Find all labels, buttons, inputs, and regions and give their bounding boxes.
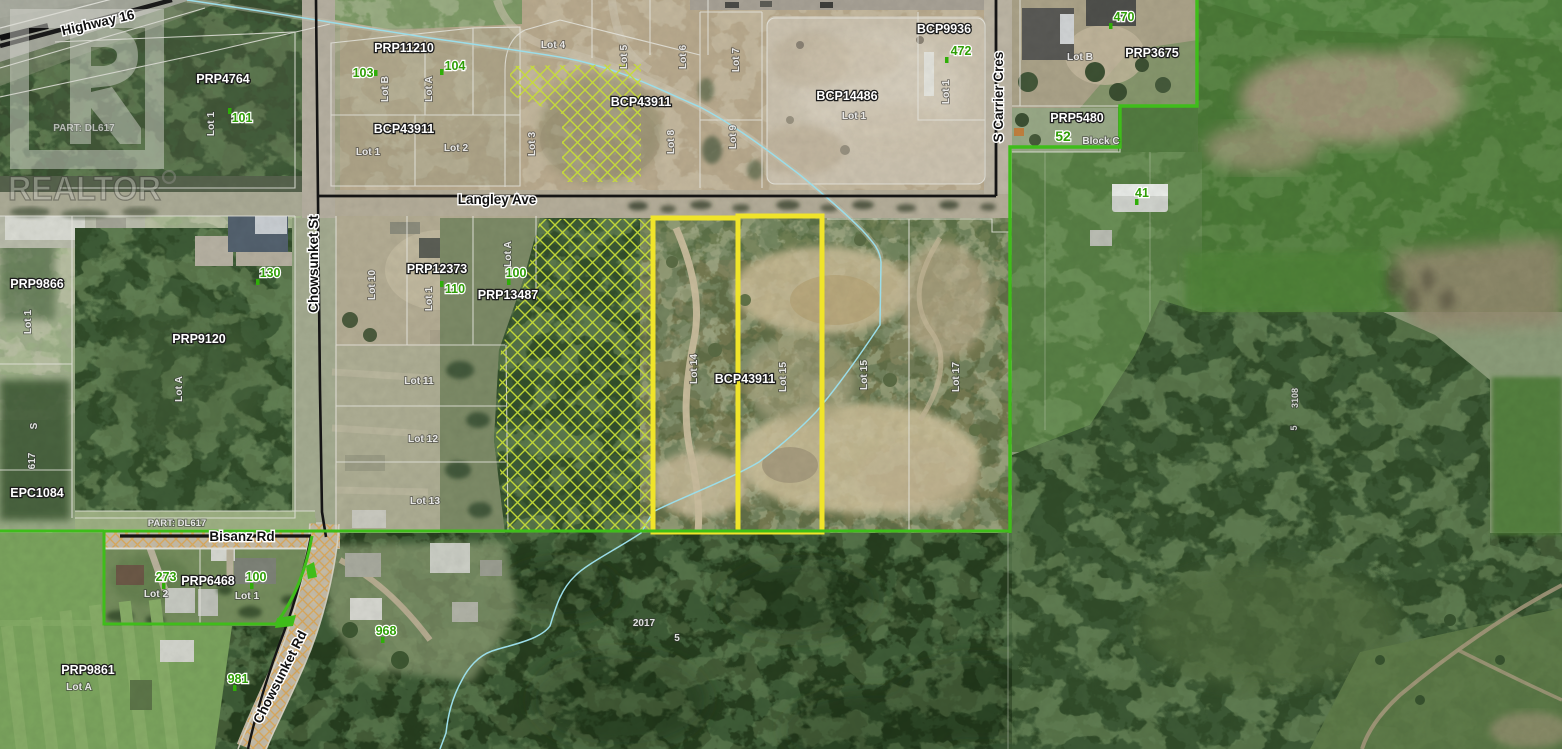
svg-text:104: 104 — [445, 59, 466, 73]
svg-text:Lot 13: Lot 13 — [410, 496, 440, 507]
svg-text:130: 130 — [260, 266, 281, 280]
svg-text:Lot 5: Lot 5 — [619, 45, 630, 70]
svg-text:PRP13487: PRP13487 — [478, 288, 539, 302]
svg-text:Lot 1: Lot 1 — [23, 310, 34, 335]
svg-text:Lot 17: Lot 17 — [951, 362, 962, 392]
svg-text:968: 968 — [376, 624, 397, 638]
svg-text:5: 5 — [674, 633, 680, 644]
svg-text:Lot 11: Lot 11 — [404, 376, 434, 387]
svg-text:103: 103 — [353, 66, 374, 80]
svg-text:Lot 1: Lot 1 — [842, 111, 867, 122]
svg-text:Lot 10: Lot 10 — [367, 270, 378, 300]
svg-text:BCP43911: BCP43911 — [374, 122, 435, 136]
svg-text:PRP6468: PRP6468 — [181, 574, 235, 588]
svg-text:Lot 4: Lot 4 — [541, 40, 566, 51]
svg-text:Lot 1: Lot 1 — [235, 591, 260, 602]
svg-text:Lot 9: Lot 9 — [728, 125, 739, 150]
svg-text:BCP43911: BCP43911 — [611, 95, 672, 109]
svg-text:273: 273 — [156, 570, 177, 584]
svg-text:Lot A: Lot A — [66, 682, 92, 693]
svg-text:Lot A: Lot A — [424, 76, 435, 102]
svg-text:Langley Ave: Langley Ave — [458, 192, 537, 207]
svg-text:PRP9861: PRP9861 — [61, 663, 115, 677]
svg-text:PRP3675: PRP3675 — [1125, 46, 1179, 60]
svg-text:Lot 2: Lot 2 — [144, 589, 169, 600]
svg-text:PRP9120: PRP9120 — [172, 332, 226, 346]
svg-text:Lot 6: Lot 6 — [678, 45, 689, 70]
svg-text:100: 100 — [246, 570, 267, 584]
svg-text:472: 472 — [951, 44, 972, 58]
svg-text:5: 5 — [1289, 425, 1299, 430]
svg-text:Lot 1: Lot 1 — [206, 112, 217, 137]
svg-text:101: 101 — [232, 111, 253, 125]
svg-text:981: 981 — [228, 672, 249, 686]
svg-text:Lot 3: Lot 3 — [527, 132, 538, 157]
svg-text:Lot 1: Lot 1 — [941, 80, 952, 105]
svg-text:REALTOR: REALTOR — [8, 170, 161, 208]
svg-text:3108: 3108 — [1290, 388, 1300, 408]
svg-text:Lot A: Lot A — [174, 376, 185, 402]
svg-text:Lot 1: Lot 1 — [424, 287, 435, 312]
svg-text:Chowsunket St: Chowsunket St — [306, 215, 321, 313]
svg-text:617: 617 — [27, 452, 38, 469]
svg-text:110: 110 — [445, 282, 465, 296]
svg-text:470: 470 — [1114, 10, 1135, 24]
svg-text:Lot 8: Lot 8 — [666, 130, 677, 155]
svg-text:PRP5480: PRP5480 — [1050, 111, 1104, 125]
svg-text:PART: DL617: PART: DL617 — [148, 518, 206, 529]
svg-text:PRP12373: PRP12373 — [407, 262, 468, 276]
svg-text:BCP9936: BCP9936 — [917, 22, 971, 36]
svg-text:PRP11210: PRP11210 — [374, 41, 434, 55]
svg-text:Lot A: Lot A — [503, 241, 514, 267]
svg-text:BCP14486: BCP14486 — [816, 89, 877, 103]
svg-text:Lot B: Lot B — [380, 76, 391, 102]
svg-text:Lot 12: Lot 12 — [408, 434, 438, 445]
svg-text:52: 52 — [1055, 128, 1071, 144]
svg-text:41: 41 — [1135, 186, 1149, 200]
svg-text:100: 100 — [506, 266, 527, 280]
svg-text:S Carrier Cres: S Carrier Cres — [991, 52, 1006, 143]
svg-text:BCP43911: BCP43911 — [715, 372, 776, 386]
svg-text:2017: 2017 — [633, 618, 656, 629]
svg-text:PRP4764: PRP4764 — [196, 72, 250, 86]
svg-text:Lot 15: Lot 15 — [778, 362, 789, 392]
svg-text:PART: DL617: PART: DL617 — [53, 123, 115, 134]
svg-text:Lot 14: Lot 14 — [689, 354, 700, 384]
svg-text:S: S — [29, 422, 40, 429]
svg-text:Block C: Block C — [1082, 136, 1119, 147]
svg-text:EPC1084: EPC1084 — [10, 486, 64, 500]
svg-text:Lot 1: Lot 1 — [356, 147, 381, 158]
svg-text:PRP9866: PRP9866 — [10, 277, 64, 291]
svg-text:Lot 15: Lot 15 — [859, 360, 870, 390]
svg-text:Lot 2: Lot 2 — [444, 143, 469, 154]
svg-text:Lot 7: Lot 7 — [731, 48, 742, 73]
svg-text:Lot B: Lot B — [1067, 52, 1093, 63]
svg-text:Bisanz Rd: Bisanz Rd — [209, 529, 274, 544]
